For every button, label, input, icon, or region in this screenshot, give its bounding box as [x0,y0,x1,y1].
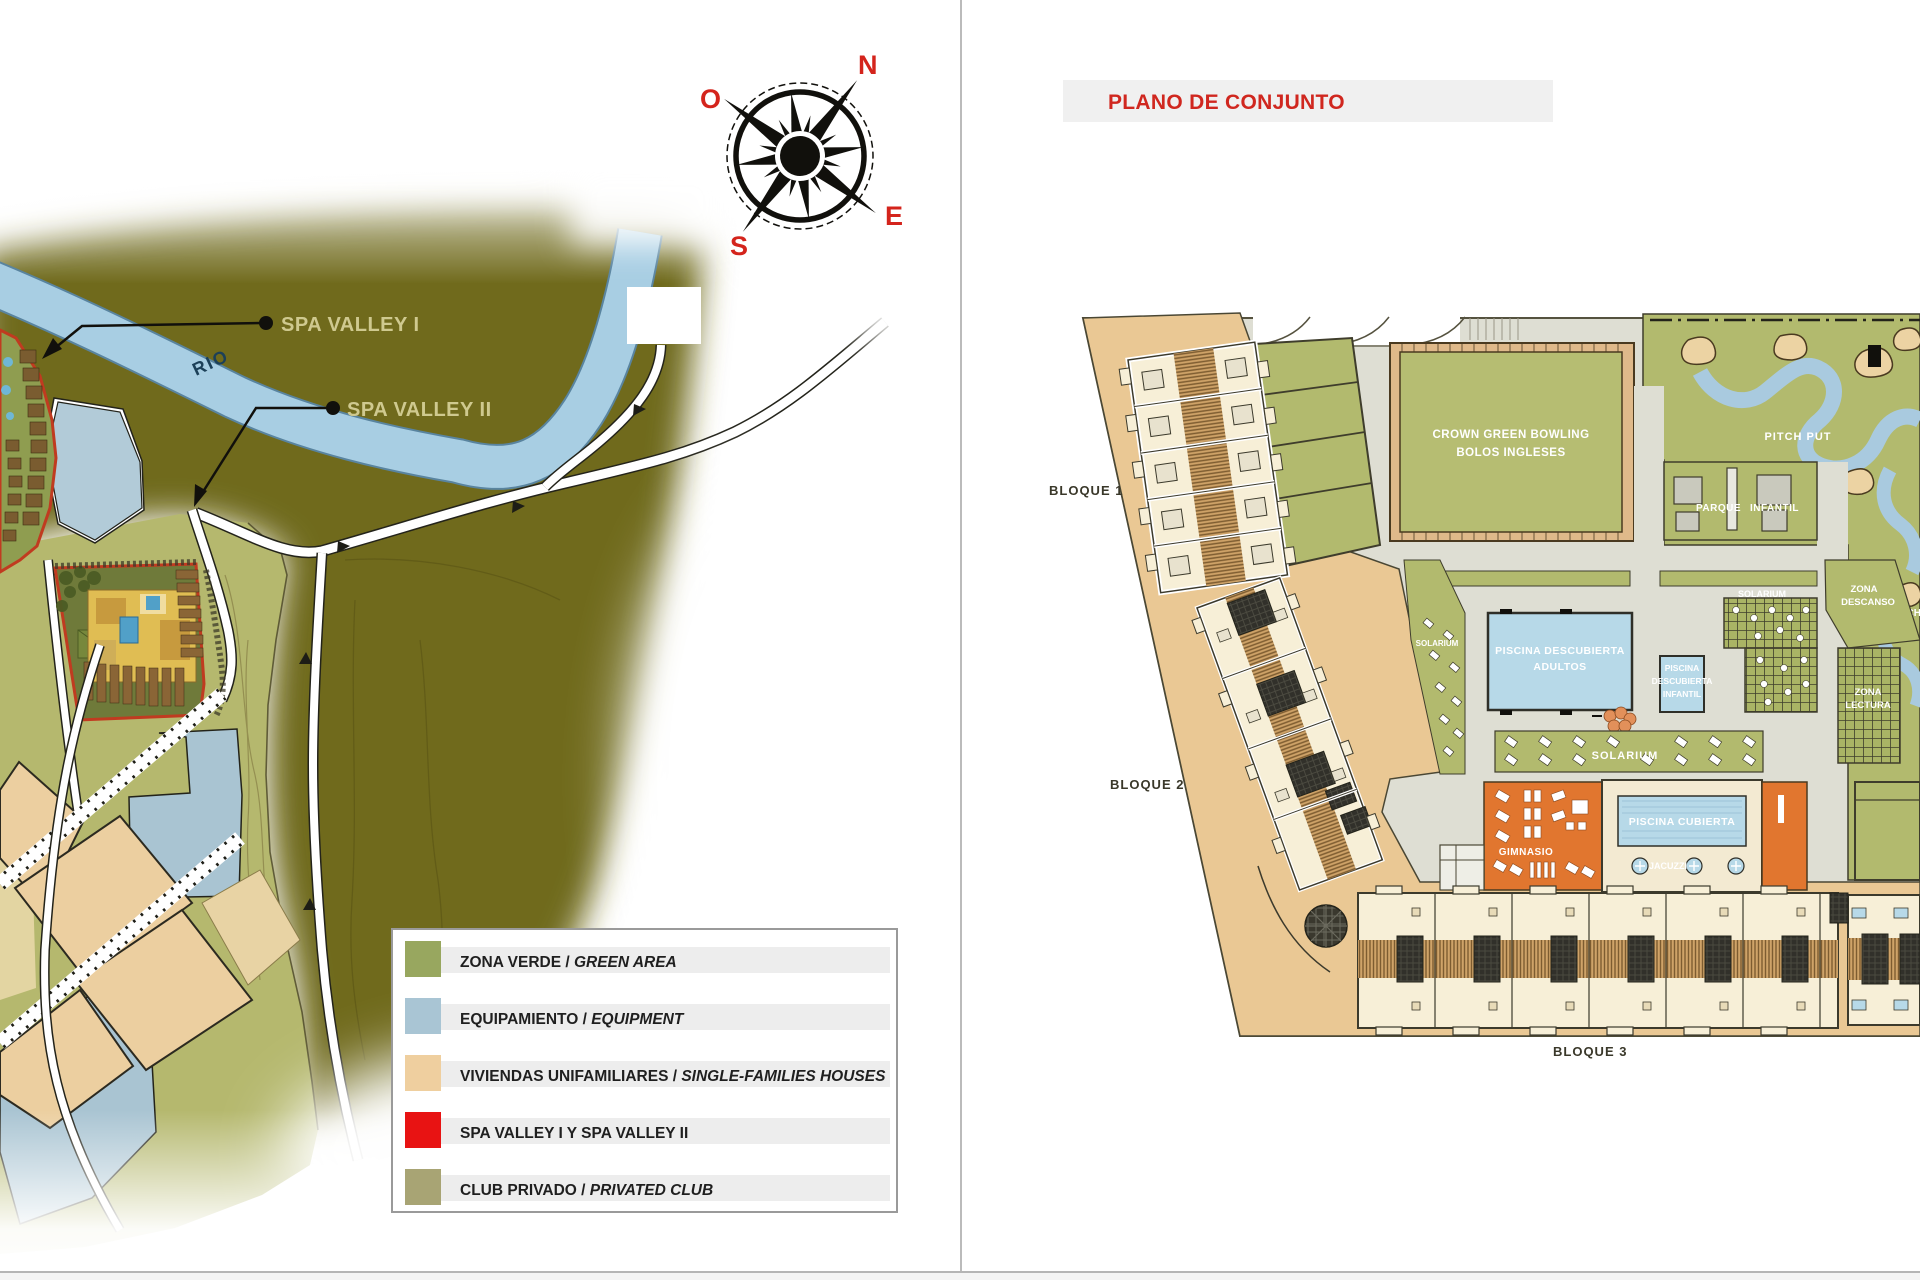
svg-text:SOLARIUM: SOLARIUM [1738,589,1786,599]
svg-text:PITCH PUT: PITCH PUT [1764,431,1831,443]
svg-text:SOLARIUM: SOLARIUM [1592,750,1659,762]
svg-text:SPA VALLEY I: SPA VALLEY I [281,314,420,336]
svg-text:INFANTIL: INFANTIL [1663,689,1701,699]
svg-text:PISCINA: PISCINA [1665,663,1699,673]
svg-text:INFANTIL: INFANTIL [1750,503,1799,514]
svg-text:SOLARIUM: SOLARIUM [1416,639,1459,648]
svg-text:ZONA VERDE / GREEN AREA: ZONA VERDE / GREEN AREA [460,954,677,971]
svg-text:GIMNASIO: GIMNASIO [1499,847,1554,858]
svg-text:S: S [730,231,748,261]
svg-text:PARQUE: PARQUE [1696,503,1741,514]
svg-text:DESCUBIERTA: DESCUBIERTA [1652,676,1713,686]
svg-text:BLOQUE 3: BLOQUE 3 [1553,1044,1627,1059]
svg-text:ADULTOS: ADULTOS [1533,661,1586,673]
svg-text:BLOQUE 2: BLOQUE 2 [1110,777,1184,792]
svg-text:N: N [858,50,878,80]
svg-text:CROWN GREEN BOWLING: CROWN GREEN BOWLING [1432,429,1589,441]
svg-text:EQUIPAMIENTO / EQUIPMENT: EQUIPAMIENTO / EQUIPMENT [460,1011,685,1028]
svg-text:O: O [700,84,721,114]
svg-text:CLUB PRIVADO / PRIVATED CLUB: CLUB PRIVADO / PRIVATED CLUB [460,1182,713,1199]
svg-text:JACUZZI: JACUZZI [1649,861,1687,871]
svg-text:DESCANSO: DESCANSO [1841,597,1895,608]
svg-text:BOLOS INGLESES: BOLOS INGLESES [1456,447,1565,459]
svg-text:SPA VALLEY I Y SPA VALLEY II: SPA VALLEY I Y SPA VALLEY II [460,1125,688,1142]
svg-text:PLANO DE CONJUNTO: PLANO DE CONJUNTO [1108,91,1345,114]
svg-text:BLOQUE 1: BLOQUE 1 [1049,483,1123,498]
svg-text:LECTURA: LECTURA [1845,700,1891,711]
svg-text:E: E [885,201,903,231]
svg-text:ZONA: ZONA [1851,584,1878,595]
svg-text:VIVIENDAS UNIFAMILIARES / SING: VIVIENDAS UNIFAMILIARES / SINGLE-FAMILIE… [460,1068,886,1085]
svg-text:SPA VALLEY II: SPA VALLEY II [347,399,492,421]
svg-text:PISCINA CUBIERTA: PISCINA CUBIERTA [1629,816,1736,828]
svg-text:PISCINA DESCUBIERTA: PISCINA DESCUBIERTA [1495,645,1625,657]
svg-text:ZONA: ZONA [1855,687,1882,698]
